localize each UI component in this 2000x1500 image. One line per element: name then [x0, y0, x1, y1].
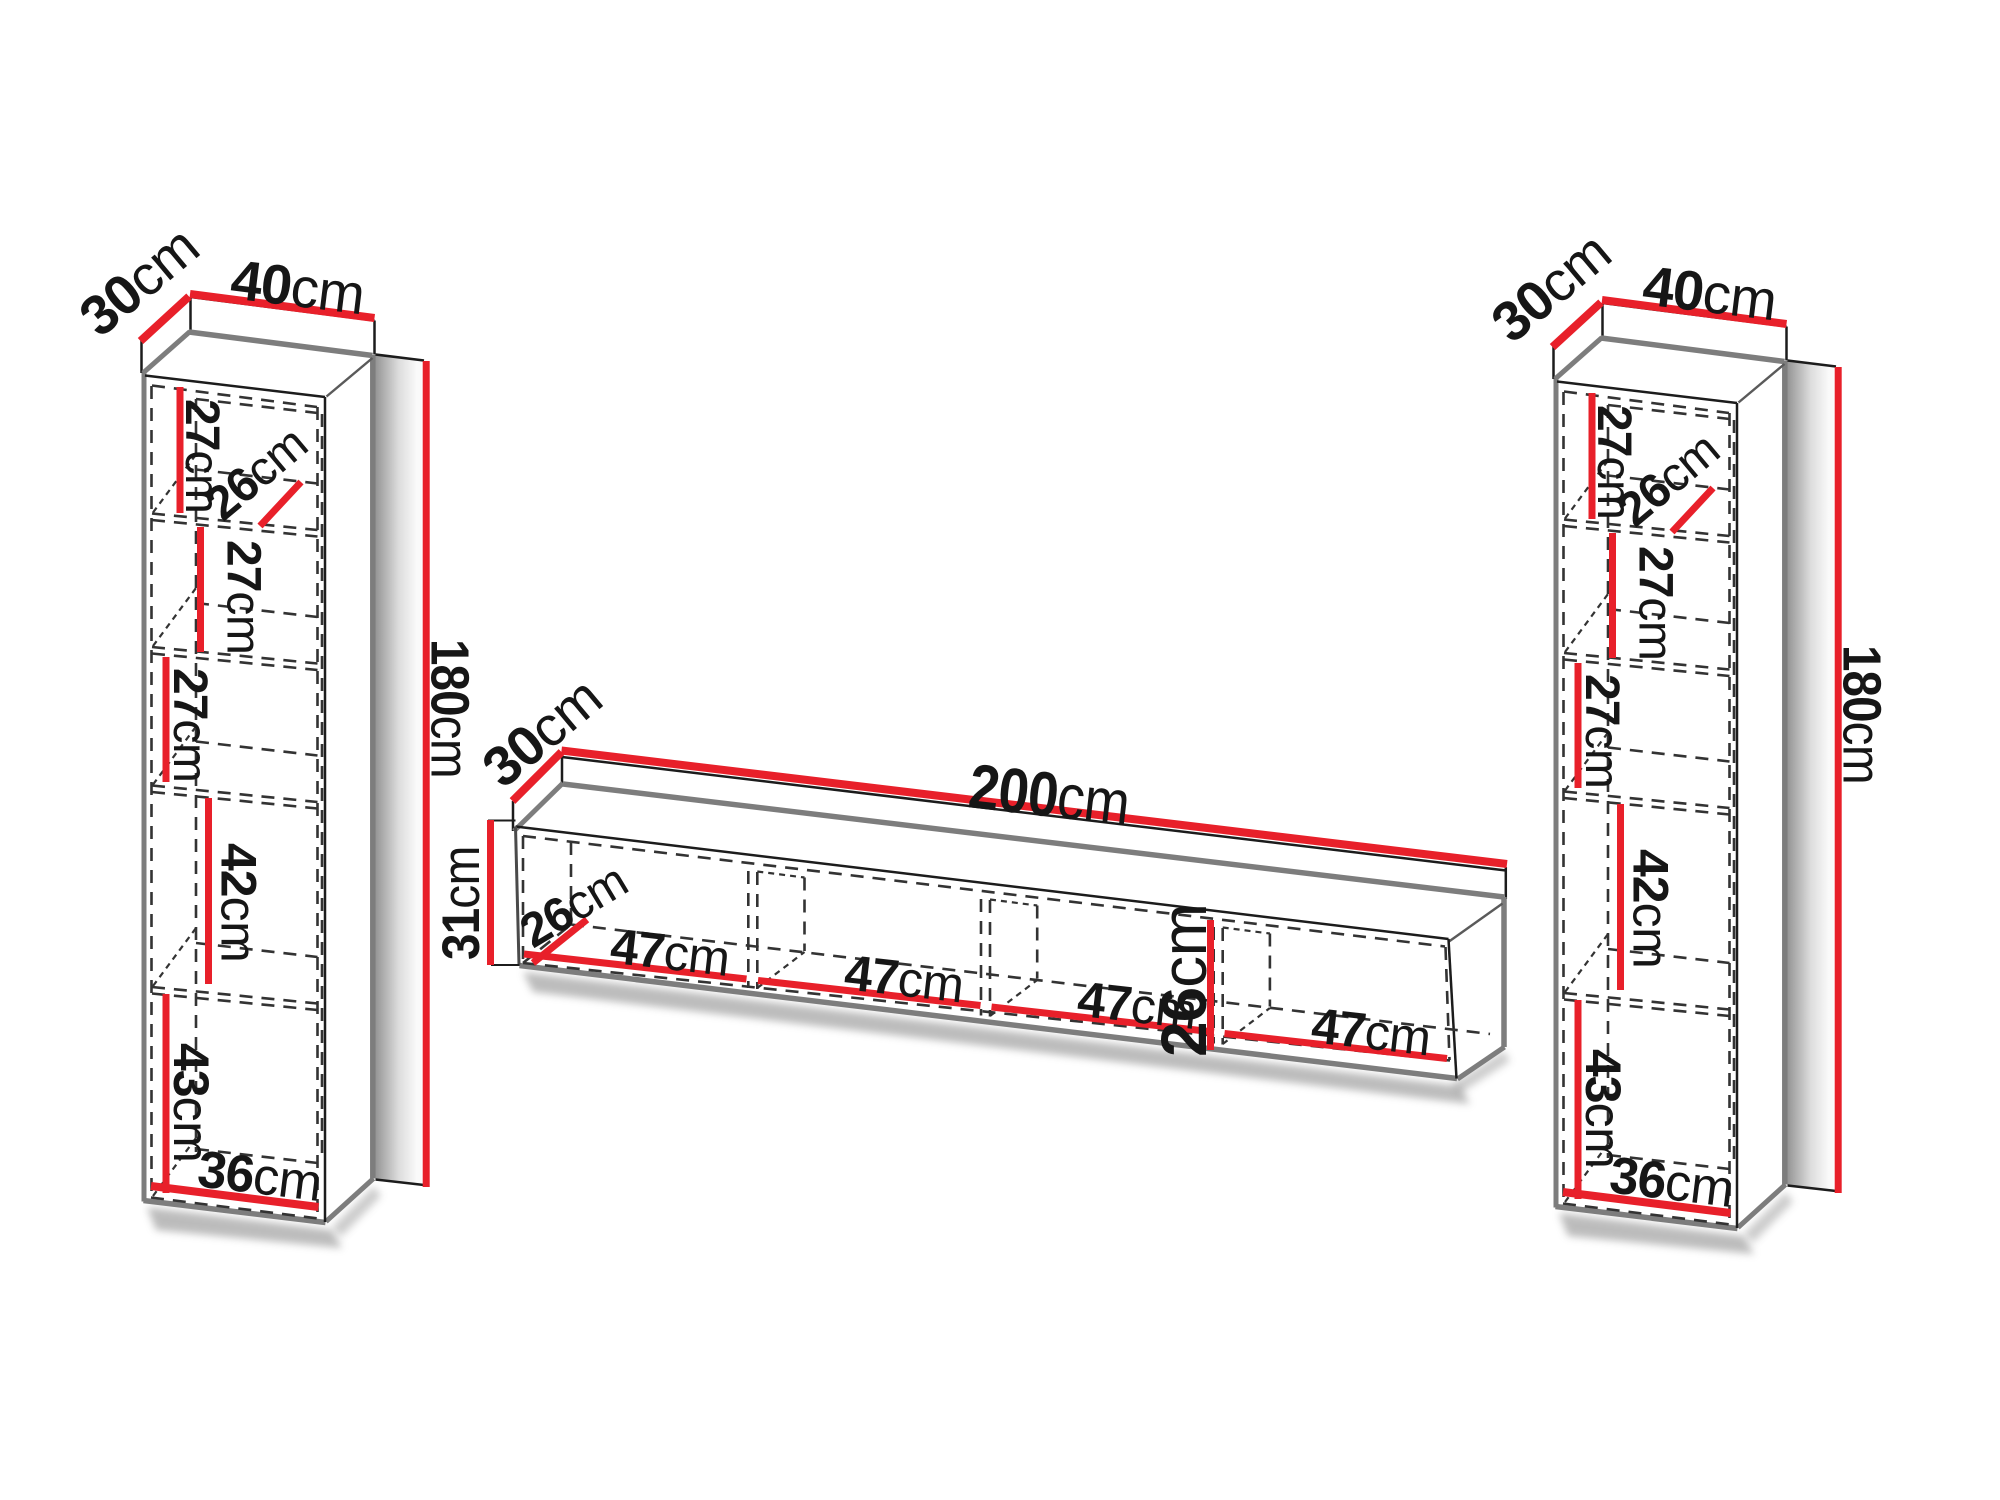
svg-text:31cm: 31cm: [431, 846, 491, 960]
svg-text:180cm: 180cm: [420, 639, 481, 778]
svg-text:27cm: 27cm: [217, 540, 270, 654]
svg-text:27cm: 27cm: [163, 668, 216, 782]
svg-text:42cm: 42cm: [211, 843, 267, 962]
